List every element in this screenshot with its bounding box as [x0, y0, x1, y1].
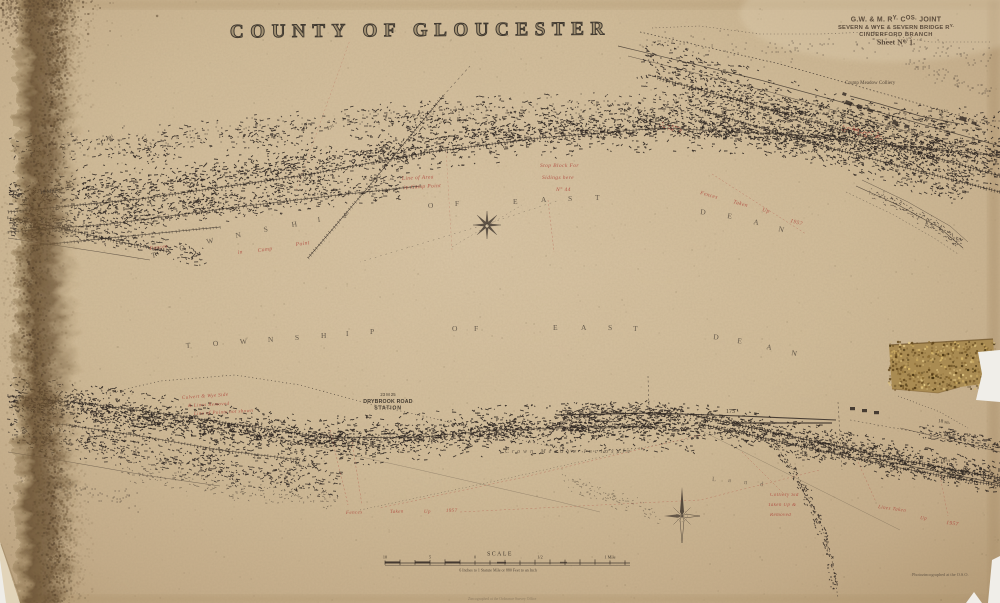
- svg-text:O: O: [452, 324, 458, 333]
- svg-text:Crump Meadow Colliery: Crump Meadow Colliery: [845, 81, 896, 86]
- svg-text:0: 0: [474, 554, 476, 559]
- svg-text:A: A: [581, 323, 587, 332]
- svg-text:S: S: [608, 323, 612, 332]
- svg-text:1957: 1957: [446, 509, 458, 514]
- svg-text:Taken Up &: Taken Up &: [768, 503, 796, 508]
- svg-text:SCALE: SCALE: [487, 552, 513, 558]
- svg-text:L: L: [712, 476, 716, 483]
- svg-text:6 Inches to 1 Statute Mile or: 6 Inches to 1 Statute Mile or 880 Feet t…: [459, 568, 536, 573]
- svg-text:O: O: [428, 201, 434, 210]
- svg-text:P: P: [370, 327, 374, 336]
- svg-text:DRYBROOK ROAD: DRYBROOK ROAD: [363, 399, 412, 405]
- svg-text:N: N: [268, 335, 274, 344]
- svg-text:Stop Block For: Stop Block For: [540, 163, 579, 169]
- svg-text:Taken: Taken: [390, 510, 404, 515]
- svg-text:Photozincographed at the O.S.O: Photozincographed at the O.S.O.: [912, 572, 969, 577]
- svg-text:T: T: [595, 193, 600, 202]
- svg-text:10: 10: [383, 554, 387, 559]
- svg-text:187: 187: [714, 114, 723, 120]
- svg-text:COUNTY OF GLOUCESTER: COUNTY OF GLOUCESTER: [230, 19, 611, 43]
- svg-text:23 M 25: 23 M 25: [380, 392, 396, 397]
- svg-text:S: S: [568, 194, 572, 203]
- svg-text:F: F: [474, 324, 478, 333]
- svg-text:173: 173: [726, 409, 735, 415]
- svg-text:5: 5: [429, 554, 431, 559]
- svg-text:1 Mile: 1 Mile: [604, 554, 615, 559]
- svg-text:F: F: [455, 199, 459, 208]
- svg-text:H: H: [321, 331, 327, 340]
- svg-text:SEVERN & WYE & SEVERN BRIDGE R: SEVERN & WYE & SEVERN BRIDGE RY.: [838, 23, 954, 31]
- svg-text:Sheet No. 1.: Sheet No. 1.: [877, 38, 915, 47]
- svg-text:Fences: Fences: [345, 510, 363, 516]
- svg-text:STATION: STATION: [374, 406, 402, 412]
- svg-text:Sidings here: Sidings here: [542, 175, 574, 181]
- svg-text:A: A: [541, 195, 547, 204]
- svg-text:T: T: [633, 324, 638, 333]
- svg-text:Removed: Removed: [769, 513, 791, 518]
- svg-text:in: in: [237, 249, 243, 256]
- svg-text:Colliery Sid: Colliery Sid: [770, 493, 799, 498]
- svg-text:a: a: [728, 477, 731, 484]
- svg-text:N° 44: N° 44: [555, 186, 571, 193]
- svg-text:Crown Meadow Inclosure: Crown Meadow Inclosure: [505, 449, 633, 455]
- svg-text:E: E: [513, 197, 518, 206]
- svg-text:E: E: [553, 323, 558, 332]
- svg-text:Up: Up: [920, 516, 928, 522]
- svg-text:S: S: [295, 333, 299, 342]
- svg-text:Zincographed at the Ordnance S: Zincographed at the Ordnance Survey Offi…: [468, 597, 537, 601]
- svg-text:Up: Up: [424, 510, 431, 515]
- svg-text:1/2: 1/2: [537, 554, 542, 559]
